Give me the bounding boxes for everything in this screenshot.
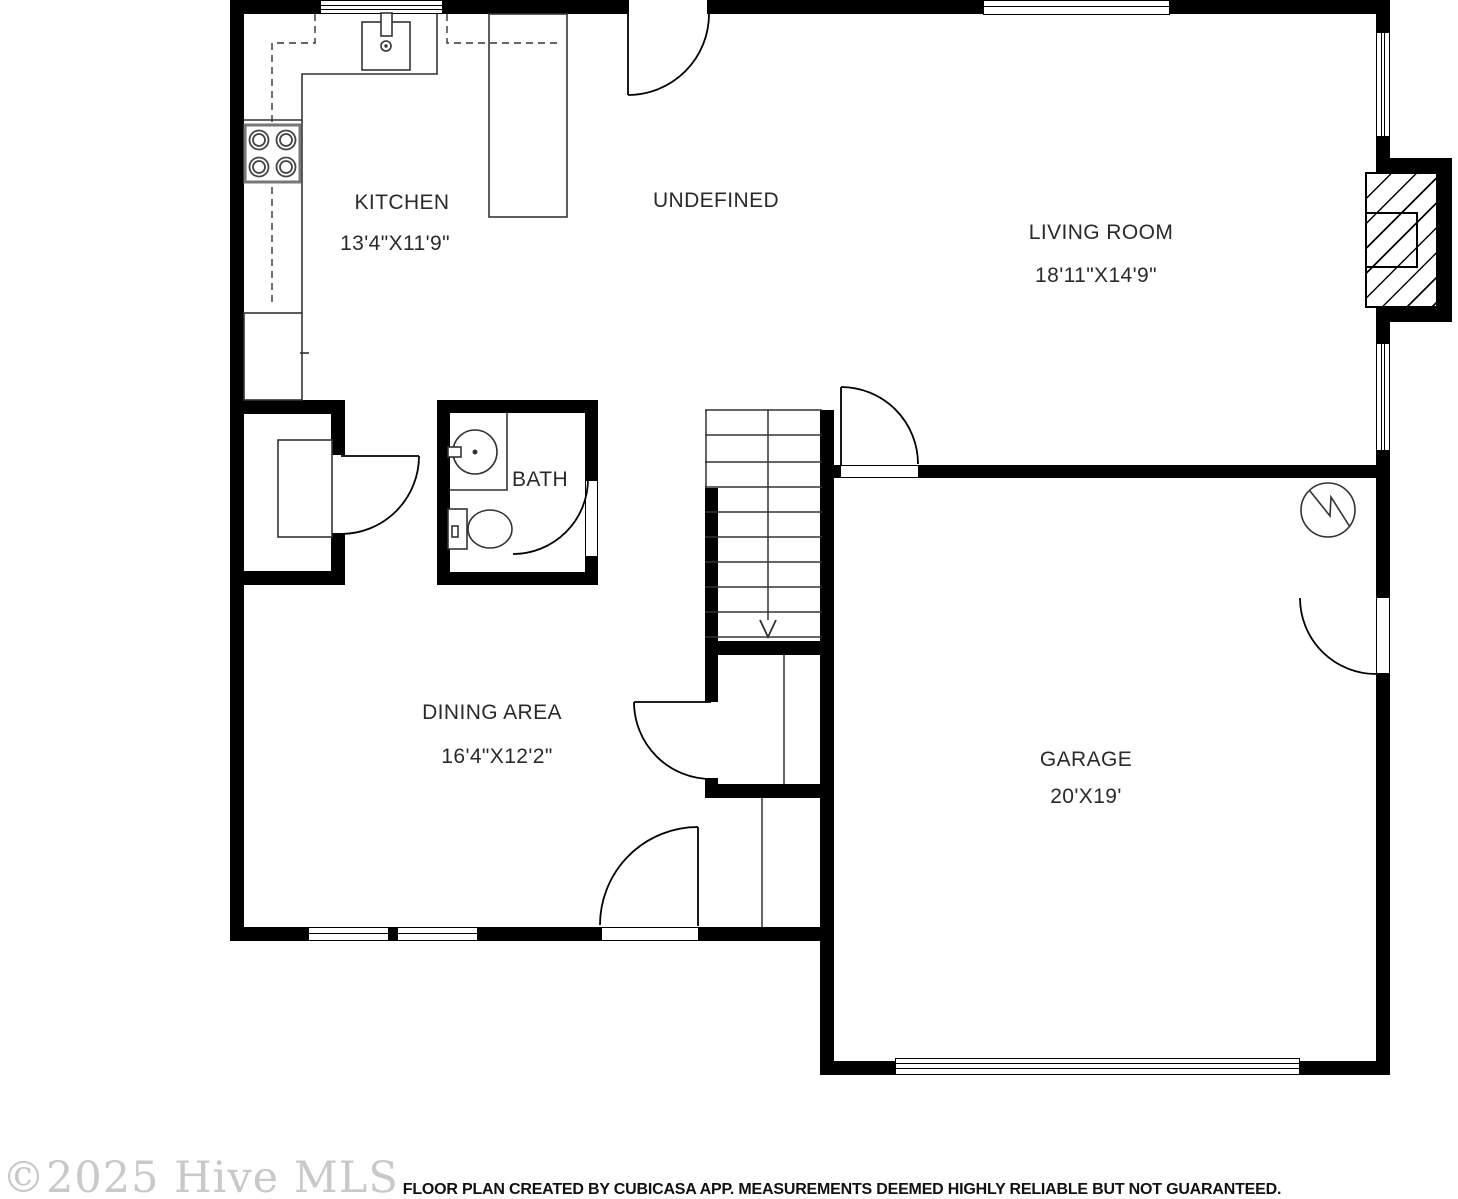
door-closet-under-stairs xyxy=(634,702,711,779)
fixtures-layer xyxy=(0,0,1458,1199)
room-dims-dining-area: 16'4"X12'2" xyxy=(441,745,552,769)
room-label-undefined: UNDEFINED xyxy=(653,189,779,213)
room-label-kitchen: KITCHEN xyxy=(355,191,450,215)
door-dining-bottom xyxy=(600,827,698,926)
hall-closet-shelf xyxy=(278,440,332,537)
stairs-down-arrow-icon xyxy=(760,620,776,637)
disclaimer-text: FLOOR PLAN CREATED BY CUBICASA APP. MEAS… xyxy=(403,1181,1281,1199)
kitchen-sink-icon xyxy=(362,13,410,70)
door-garage-side-arc xyxy=(1300,598,1376,674)
kitchen-peninsula-counter xyxy=(489,14,567,217)
mls-watermark: ©2025 Hive MLS xyxy=(2,1153,399,1199)
room-label-dining-area: DINING AREA xyxy=(422,701,562,725)
stove-icon xyxy=(245,125,300,182)
toilet-icon xyxy=(448,509,512,549)
floor-plan: KITCHEN 13'4"X11'9" UNDEFINED LIVING ROO… xyxy=(0,0,1458,1199)
room-dims-kitchen: 13'4"X11'9" xyxy=(340,232,450,256)
bathroom-sink-icon xyxy=(448,430,497,474)
door-garage-top xyxy=(841,387,918,465)
room-label-garage: GARAGE xyxy=(1040,748,1132,772)
room-dims-garage: 20'X19' xyxy=(1050,785,1122,809)
refrigerator-icon xyxy=(244,313,309,400)
door-entry-top xyxy=(628,14,709,95)
electrical-meter-icon xyxy=(1301,483,1355,537)
room-dims-living-room: 18'11"X14'9" xyxy=(1035,264,1157,288)
room-label-bath: BATH xyxy=(512,468,568,492)
stairs-icon xyxy=(705,410,822,637)
door-hall-closet xyxy=(341,456,419,534)
closet-under-stairs-divider xyxy=(762,655,784,927)
room-label-living-room: LIVING ROOM xyxy=(1029,221,1173,245)
